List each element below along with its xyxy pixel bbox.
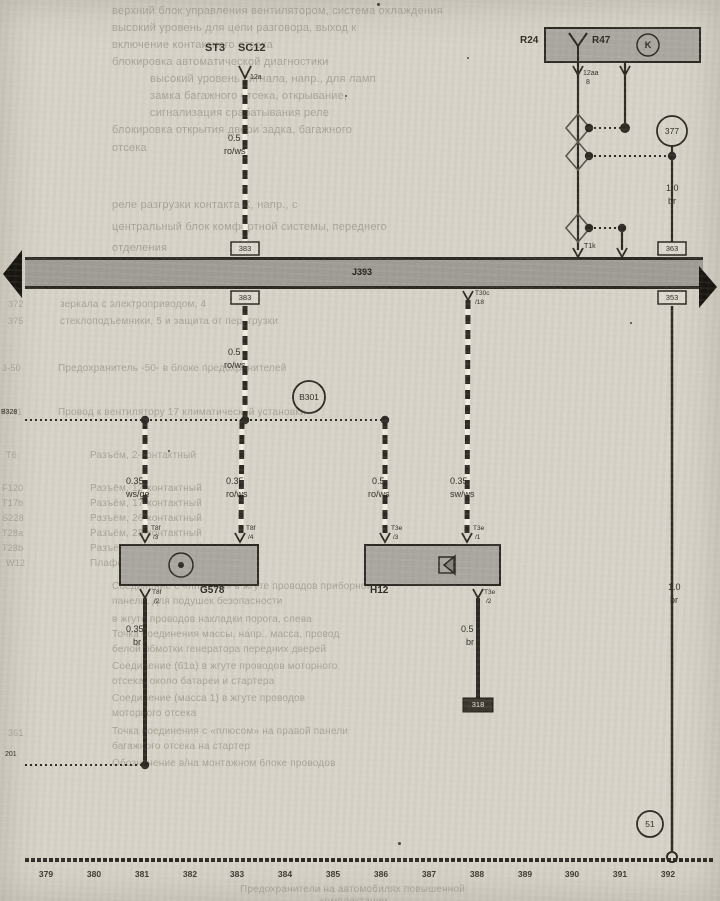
component-h12	[365, 545, 500, 712]
pin-label: T3e	[473, 526, 484, 533]
pin-number: /2	[486, 599, 491, 606]
relay-k-symbol: K	[642, 41, 654, 50]
splice-ref-b328: B328	[1, 409, 17, 416]
pin-label-t1k: T1k	[584, 243, 596, 250]
wire-color: br	[670, 596, 678, 605]
relay-box-r47	[545, 28, 700, 62]
wire-color: ro/ws	[368, 490, 390, 499]
ground-ref-box: 318	[463, 701, 493, 709]
track-number: 389	[518, 869, 532, 879]
scanned-wiring-diagram-page: верхний блок управления вентилятором, си…	[0, 0, 720, 901]
connection-label-51: 51	[637, 820, 663, 829]
component-g578	[120, 545, 258, 765]
wire-ground-right	[637, 291, 686, 862]
bus-ref-box: 383	[231, 294, 259, 302]
bus-label-j393: J393	[340, 268, 384, 277]
wire-gauge: 0.35	[450, 477, 468, 486]
wire-fuse-to-bus	[231, 66, 259, 255]
pin-number: 8	[586, 79, 590, 86]
pin-label: T3e	[484, 590, 495, 597]
track-number: 387	[422, 869, 436, 879]
pin-number: /4	[248, 535, 253, 542]
track-number: 392	[661, 869, 675, 879]
wire-color: ro/ws	[226, 490, 248, 499]
pin-label: T8f	[246, 526, 255, 533]
pin-number: /2	[154, 599, 159, 606]
bus-bar-j393	[3, 250, 717, 308]
track-number: 384	[278, 869, 292, 879]
component-label-r24: R24	[520, 36, 538, 46]
splice-line-b328	[25, 381, 389, 424]
track-number: 391	[613, 869, 627, 879]
bus-right-arrow	[699, 266, 717, 308]
pin-label: T8f	[151, 526, 160, 533]
wire-color: br	[133, 638, 141, 647]
diagram-graphics	[0, 0, 720, 901]
splice-line-bottom-left	[25, 761, 149, 769]
wire-gauge: 0.5	[228, 348, 241, 357]
splice-drop-to-bus	[589, 224, 627, 257]
bus-ref-box: 353	[658, 294, 686, 302]
splice-ref-bottom: 201	[5, 751, 17, 758]
pin-label-t30c: T30c	[475, 291, 489, 298]
track-number: 385	[326, 869, 340, 879]
wire-color: br	[466, 638, 474, 647]
wire-gauge: 1.0	[668, 583, 681, 592]
pin-number: /18	[475, 300, 484, 307]
pin-number: /3	[153, 535, 158, 542]
wire-gauge: 0.35	[226, 477, 244, 486]
track-number: 379	[39, 869, 53, 879]
track-number: 380	[87, 869, 101, 879]
wire-color: br	[668, 197, 676, 206]
fuse-label-sc12: SC12	[238, 43, 266, 54]
wire-color: sw/ws	[450, 490, 475, 499]
splice-label-b301: B301	[291, 393, 327, 402]
track-number: 386	[374, 869, 388, 879]
component-label-r47: R47	[592, 36, 610, 46]
pin-label-12aa: 12aa	[583, 70, 599, 77]
wires-to-h12	[380, 291, 473, 542]
pin-label: T3e	[391, 526, 402, 533]
wire-gauge: 0.5	[372, 477, 385, 486]
wire-gauge: 1.0	[666, 184, 679, 193]
track-number: 388	[470, 869, 484, 879]
pin-number: /1	[475, 535, 480, 542]
pin-number: /3	[393, 535, 398, 542]
pin-label: T8f	[152, 590, 161, 597]
component-label-h12: H12	[370, 586, 388, 596]
wire-color: ro/ws	[224, 361, 246, 370]
wire-color: ro/ws	[224, 147, 246, 156]
track-number: 390	[565, 869, 579, 879]
component-label-g578: G578	[200, 586, 224, 596]
bus-left-arrow	[3, 250, 22, 298]
wire-gauge: 0.35	[126, 625, 144, 634]
wire-gauge: 0.5	[461, 625, 474, 634]
bus-ref-box: 363	[658, 245, 686, 253]
pin-label-12a: 12a	[250, 74, 262, 81]
wire-gauge: 0.35	[126, 477, 144, 486]
track-number: 383	[230, 869, 244, 879]
track-number: 382	[183, 869, 197, 879]
connection-label-377: 377	[657, 127, 687, 136]
bus-ref-box: 383	[231, 245, 259, 253]
wire-gauge: 0.5	[228, 134, 241, 143]
fuse-label-st3: ST3	[205, 43, 225, 54]
track-number: 381	[135, 869, 149, 879]
wire-color: ws/ge	[126, 490, 150, 499]
